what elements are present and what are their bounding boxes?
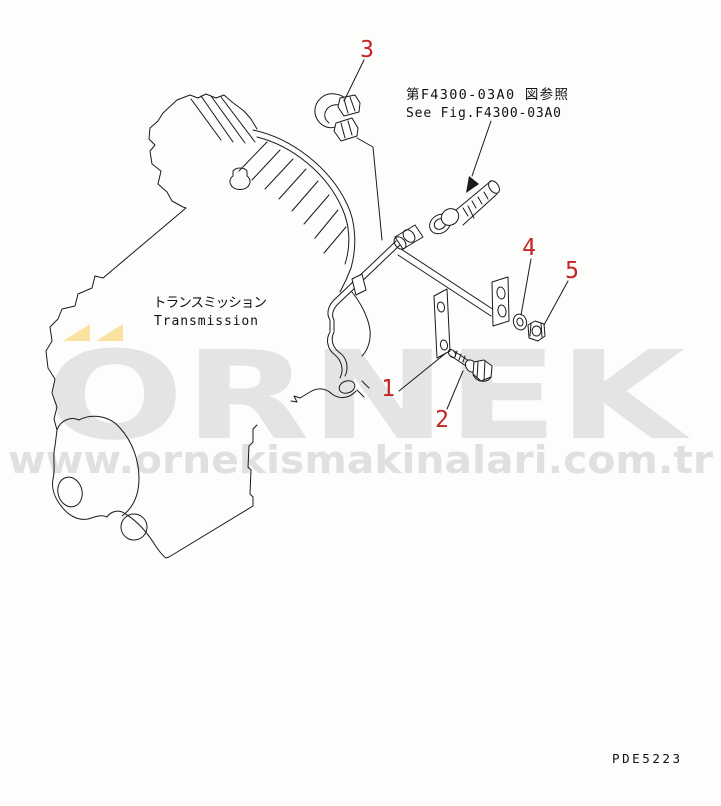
callout-3: 3 [360, 37, 374, 63]
component-label-en: Transmission [154, 314, 258, 329]
main-pipe [328, 225, 423, 331]
component-label-ja: トランスミッション [153, 295, 267, 311]
part-5-nut [528, 321, 545, 341]
reference-arrow-icon [466, 176, 479, 193]
callout-2: 2 [435, 407, 449, 433]
parts-diagram-page: ORNEK www.ornekismakinalari.com.tr [0, 0, 721, 806]
reference-label-ja: 第F4300-03A0 図参照 [406, 86, 568, 103]
part-3-pipe [315, 94, 382, 240]
callout-5: 5 [565, 258, 579, 284]
callout-1: 1 [381, 376, 395, 402]
reference-hose [426, 179, 502, 238]
drawing-code: PDE5223 [612, 751, 680, 766]
transmission-top-cover [163, 94, 257, 143]
bell-housing-rim [239, 130, 355, 292]
callout-4: 4 [522, 235, 536, 261]
watermark: ORNEK www.ornekismakinalari.com.tr [8, 324, 713, 482]
watermark-url-text: www.ornekismakinalari.com.tr [8, 438, 713, 482]
housing-boss [230, 168, 250, 190]
reference-label-en: See Fig.F4300-03A0 [406, 106, 561, 121]
